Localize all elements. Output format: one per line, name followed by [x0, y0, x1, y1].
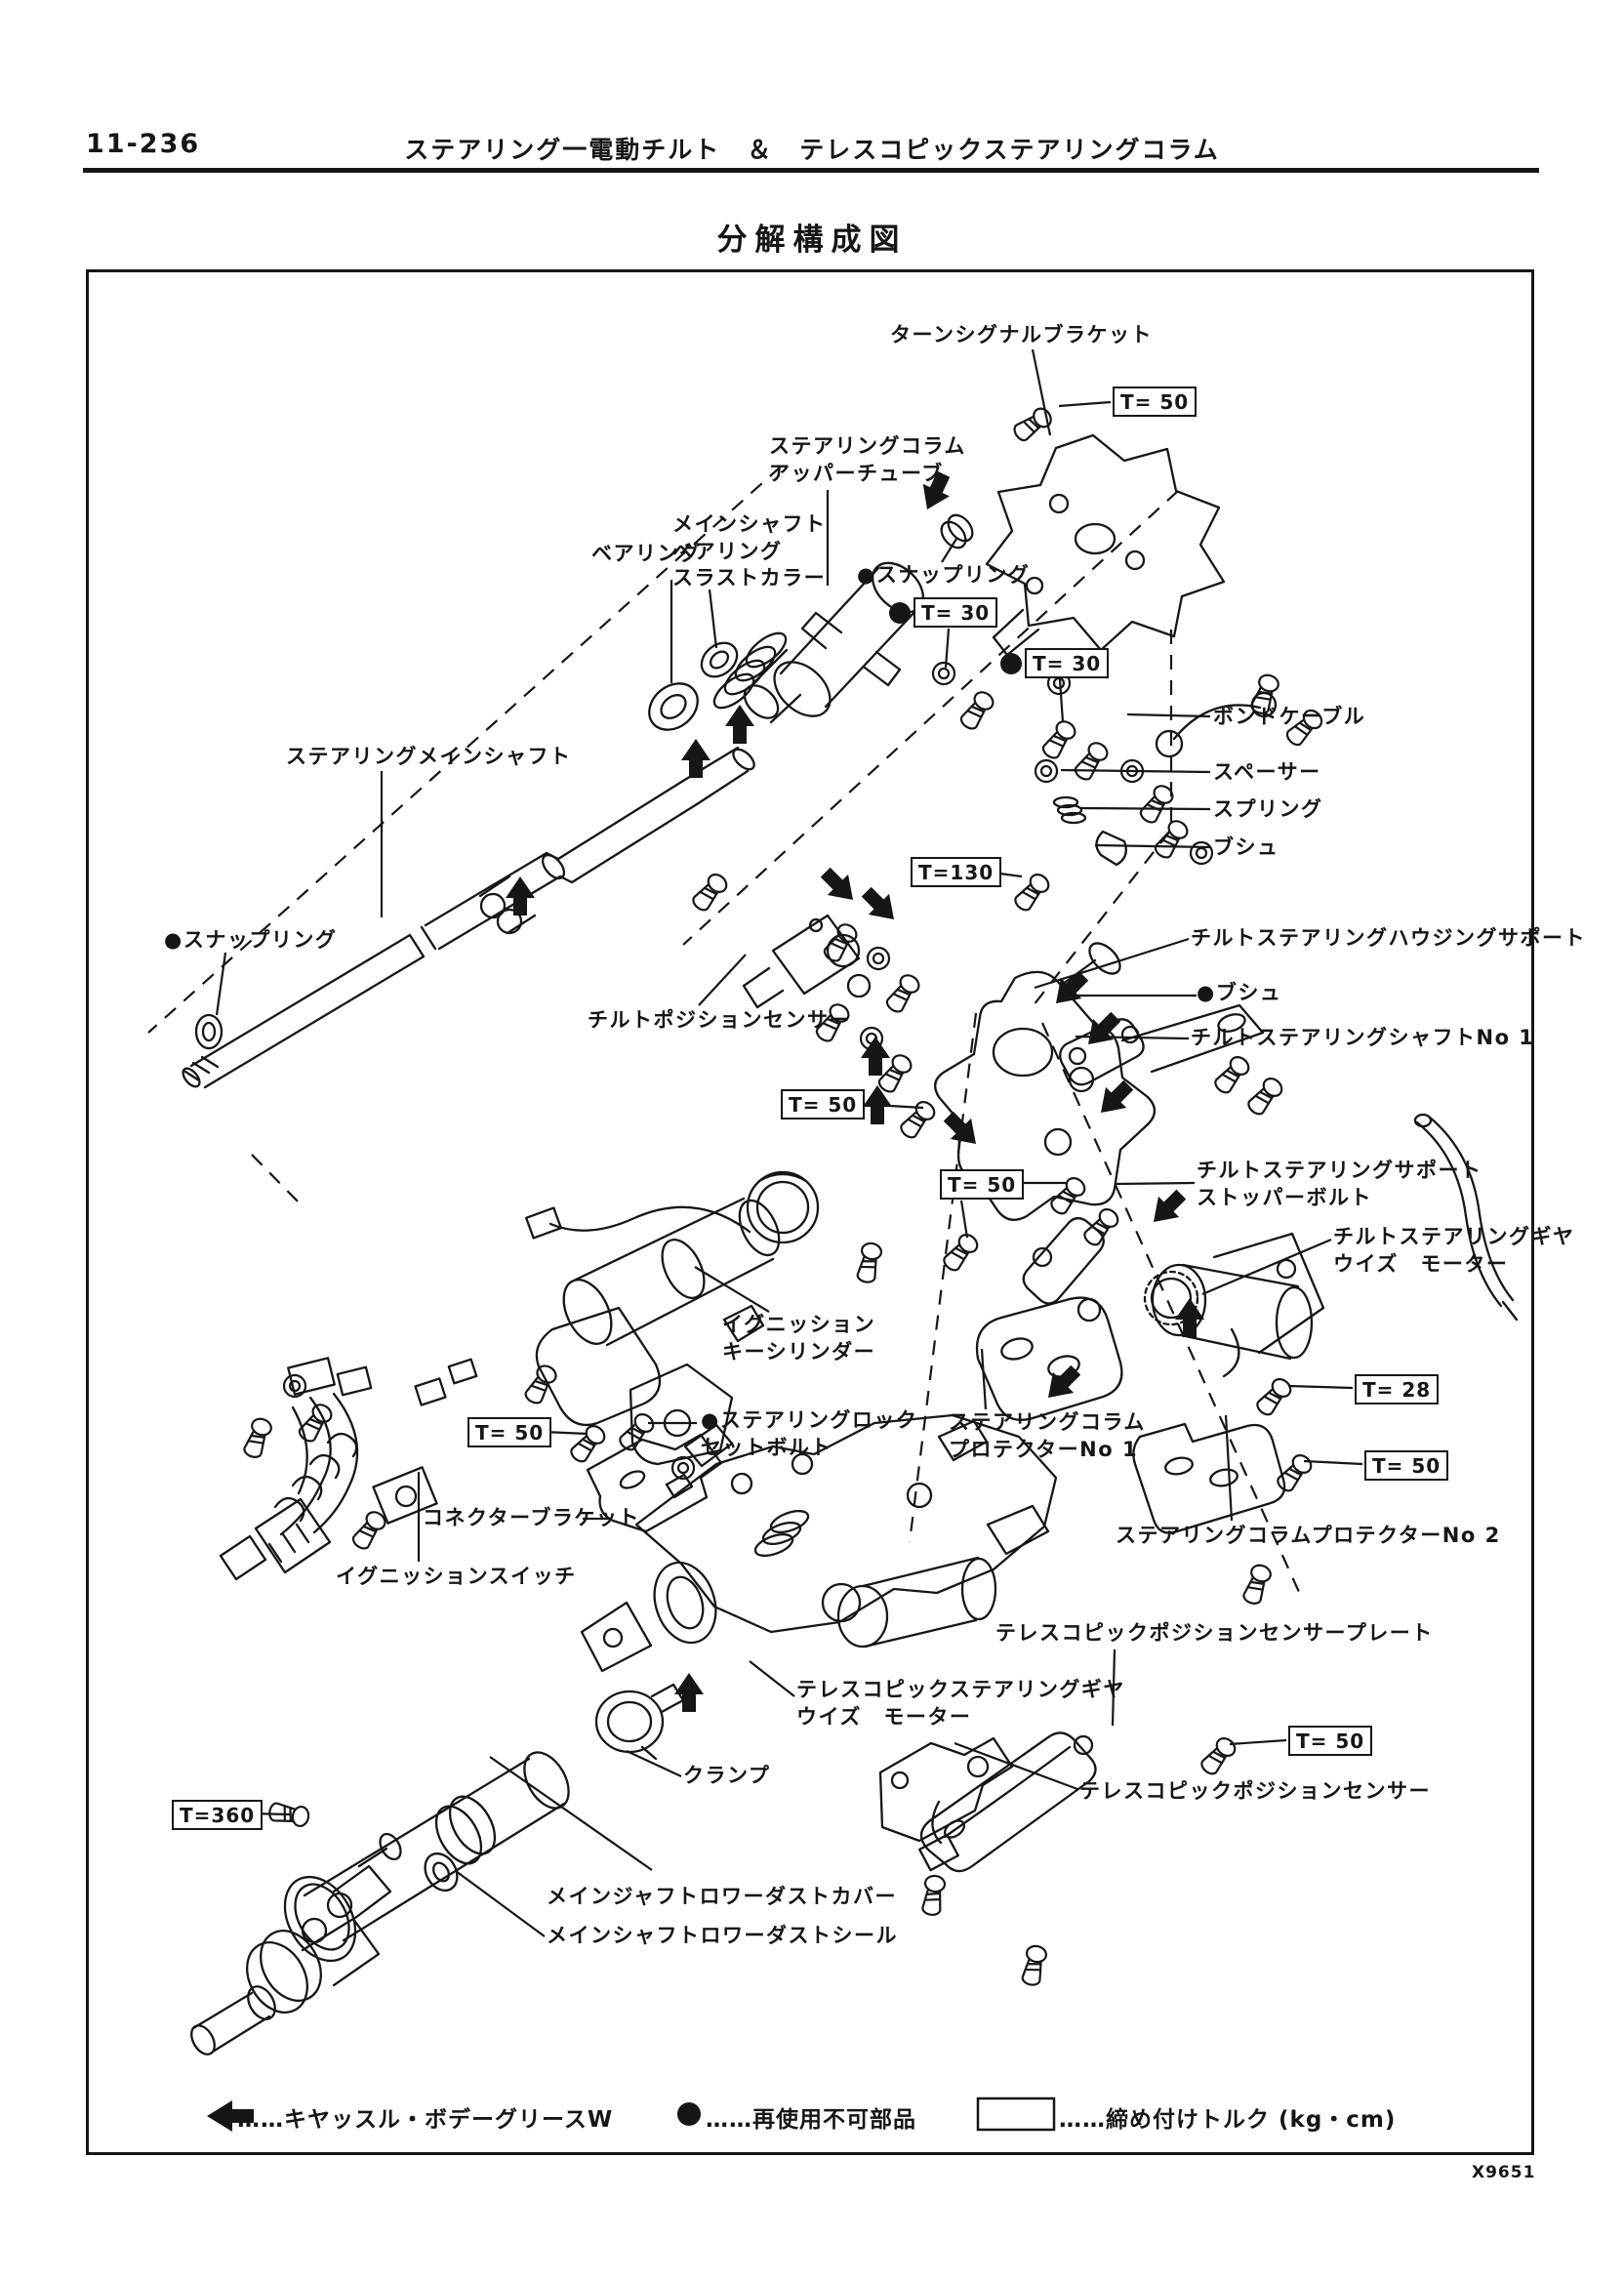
label-spring: スプリング	[1213, 796, 1323, 824]
label-telescopic-position-sensor: テレスコピックポジションセンサー	[1079, 1778, 1431, 1806]
label-clamp: クランプ	[683, 1763, 770, 1790]
label-tilt-steering-shaft-no1: チルトステアリングシャフトNo 1	[1191, 1025, 1534, 1052]
legend-symbols	[207, 2098, 1054, 2132]
torque-callout: T= 50	[1364, 1450, 1448, 1481]
label-tilt-position-sensor: チルトポジションセンサー	[588, 1007, 851, 1035]
label-steering-main-shaft: ステアリングメインシャフト	[286, 744, 572, 771]
fasteners	[242, 405, 1325, 1986]
label-snap-ring-upper: ●スナップリング	[857, 562, 1030, 590]
non-reusable-dot	[889, 602, 911, 624]
torque-callout: T= 50	[1288, 1726, 1372, 1756]
label-connector-bracket: コネクターブラケット	[423, 1505, 640, 1532]
label-snap-ring-lower: ●スナップリング	[164, 927, 337, 955]
label-telescopic-sensor-plate: テレスコピックポジションセンサープレート	[995, 1620, 1434, 1648]
non-reusable-dot	[677, 2102, 701, 2126]
label-tilt-support-stopper-bolt: チルトステアリングサポート ストッパーボルト	[1197, 1158, 1482, 1211]
label-spacer: スペーサー	[1213, 759, 1321, 787]
label-bearing: ベアリング	[591, 541, 702, 568]
torque-callout: T= 28	[1355, 1374, 1439, 1405]
torque-callout: T=130	[911, 857, 1001, 887]
torque-callout: T= 50	[467, 1417, 551, 1447]
label-column-protector-no1: ステアリングコラム プロテクターNo 1	[949, 1409, 1146, 1463]
label-mainshaft-lower-dust-cover: メインジャフトロワーダストカバー	[547, 1884, 897, 1911]
torque-callout: T= 50	[1113, 387, 1197, 417]
label-bush: ブシュ	[1213, 835, 1279, 862]
torque-box-icon	[978, 2098, 1054, 2130]
label-steering-lock-set-bolt: ●ステアリングロック セットボルト	[701, 1407, 917, 1461]
torque-callout: T= 30	[913, 597, 997, 628]
torque-callout: T= 30	[1025, 648, 1109, 678]
non-reusable-dot	[1000, 653, 1022, 674]
label-column-protector-no2: ステアリングコラムプロテクターNo 2	[1116, 1523, 1501, 1550]
label-turn-signal-bracket: ターンシグナルブラケット	[890, 322, 1153, 349]
label-bond-cable: ボンドケーブル	[1213, 704, 1365, 731]
label-mainshaft-lower-dust-seal: メインシャフトロワーダストシール	[547, 1923, 898, 1950]
label-ignition-key-cylinder: イグニッション キーシリンダー	[722, 1312, 875, 1365]
label-ignition-switch: イグニッションスイッチ	[336, 1564, 577, 1591]
torque-callout: T=360	[172, 1800, 263, 1830]
label-tilt-gear-with-motor: チルトステアリングギヤ ウイズ モーター	[1333, 1224, 1575, 1278]
label-column-upper-tube: ステアリングコラム アッパーチューブ	[769, 433, 966, 487]
torque-callout: T= 50	[940, 1169, 1024, 1200]
label-tilt-housing-support: チルトステアリングハウジングサポート	[1191, 925, 1586, 953]
manual-page: 11-236 ステアリング一電動チルト ＆ テレスコピックステアリングコラム 分…	[0, 0, 1624, 2280]
label-telescopic-gear-with-motor: テレスコピックステアリングギヤ ウイズ モーター	[796, 1677, 1125, 1730]
grease-arrow-icon	[207, 2100, 254, 2132]
torque-callout: T= 50	[781, 1089, 865, 1120]
label-bush-right: ●ブシュ	[1197, 980, 1281, 1007]
